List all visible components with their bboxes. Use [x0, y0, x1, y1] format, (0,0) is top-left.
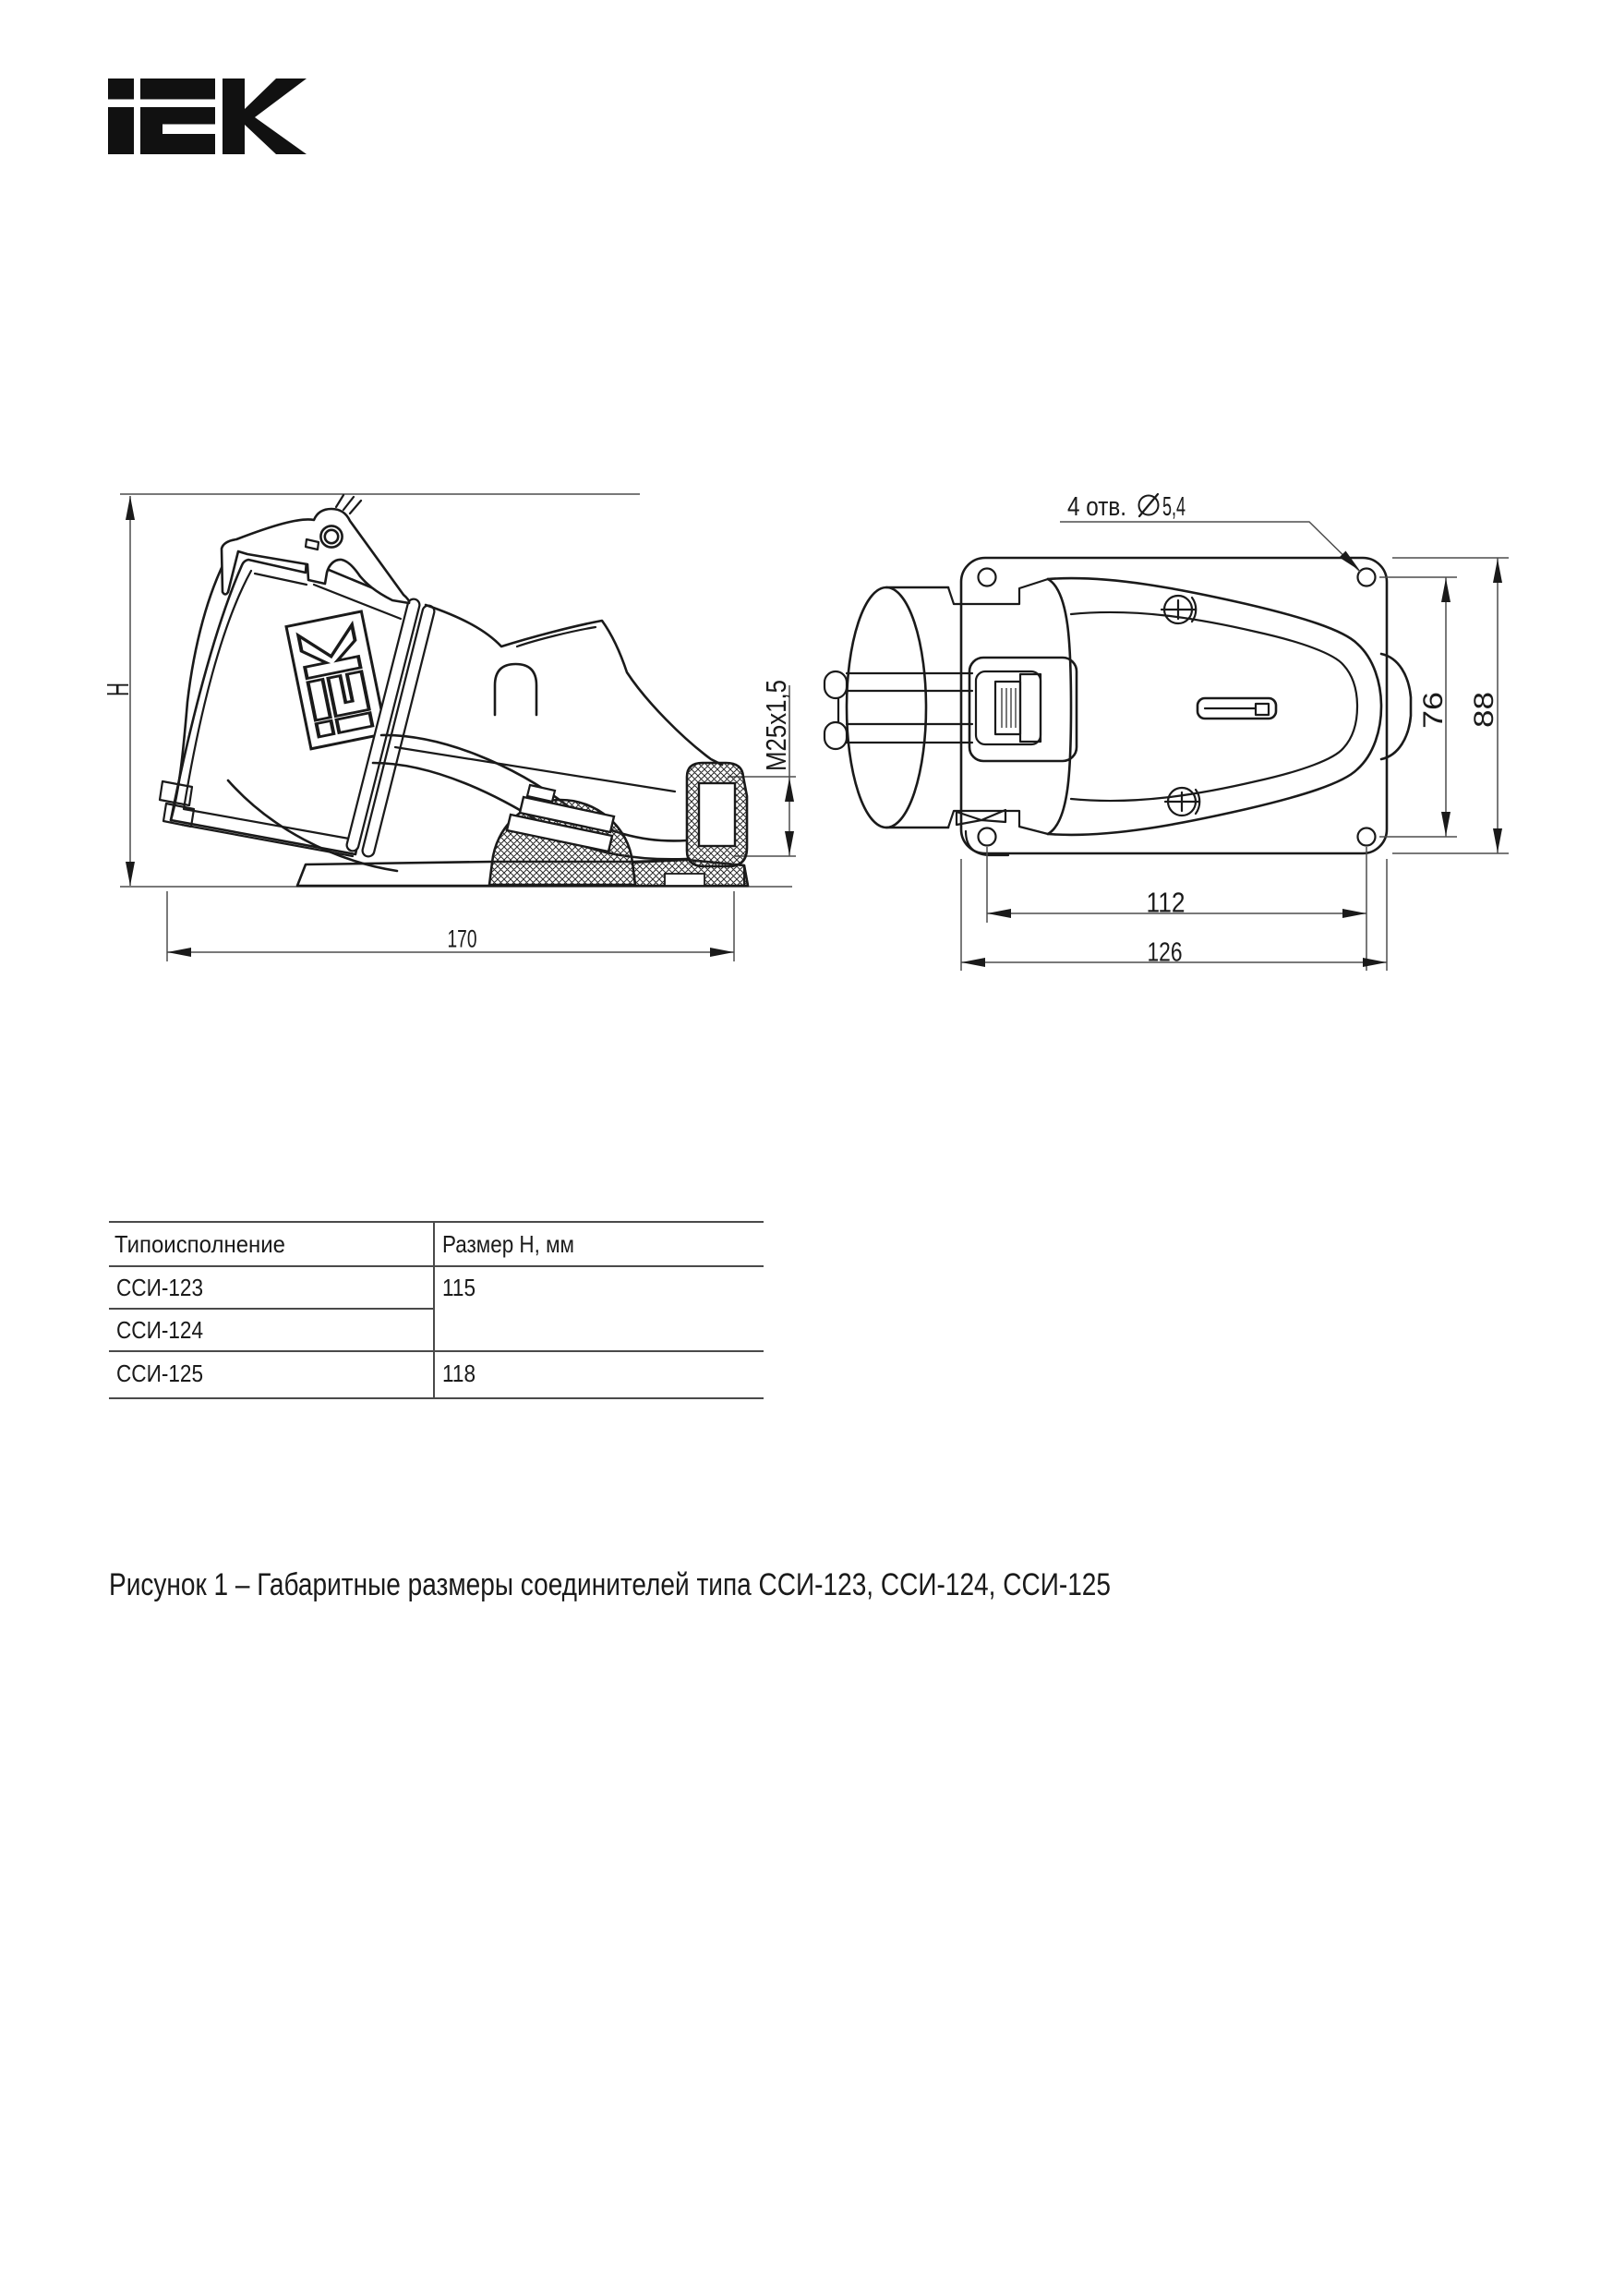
svg-text:76: 76 — [1418, 692, 1449, 729]
svg-text:H: H — [101, 683, 135, 696]
svg-text:4 отв.: 4 отв. — [1067, 492, 1126, 522]
svg-text:170: 170 — [448, 925, 477, 953]
svg-text:М25х1,5: М25х1,5 — [760, 680, 792, 771]
svg-text:112: 112 — [1147, 887, 1186, 919]
svg-text:88: 88 — [1469, 692, 1499, 728]
svg-text:ССИ-124: ССИ-124 — [116, 1316, 203, 1344]
svg-text:5,4: 5,4 — [1162, 492, 1186, 522]
svg-text:Типоисполнение: Типоисполнение — [114, 1230, 285, 1258]
svg-text:ССИ-125: ССИ-125 — [116, 1359, 203, 1387]
svg-text:115: 115 — [442, 1274, 475, 1301]
svg-text:Размер Н, мм: Размер Н, мм — [442, 1230, 574, 1258]
svg-text:118: 118 — [442, 1359, 475, 1387]
svg-text:Рисунок 1 – Габаритные размеры: Рисунок 1 – Габаритные размеры соедините… — [109, 1567, 1111, 1602]
svg-text:126: 126 — [1148, 938, 1183, 968]
svg-text:ССИ-123: ССИ-123 — [116, 1274, 203, 1301]
